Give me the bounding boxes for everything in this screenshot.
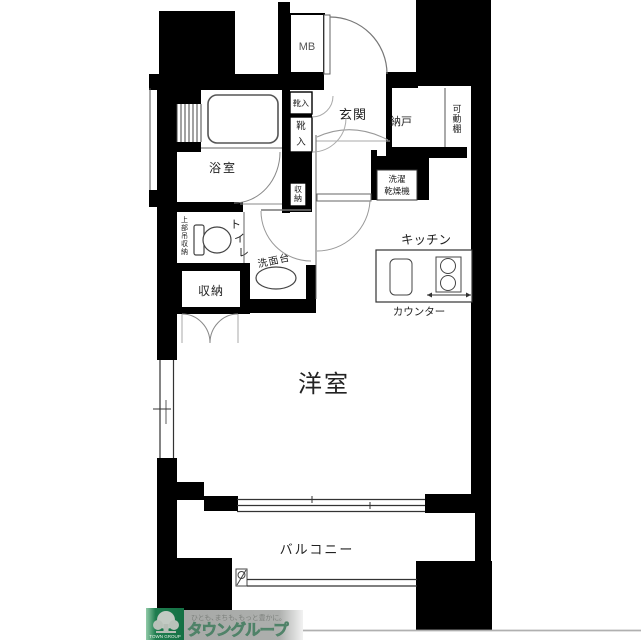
svg-text:納: 納 xyxy=(294,193,302,203)
svg-text:MB: MB xyxy=(299,41,316,53)
svg-text:納戸: 納戸 xyxy=(390,115,412,128)
svg-text:収: 収 xyxy=(294,184,302,194)
svg-text:収: 収 xyxy=(181,240,188,248)
svg-text:洗濯: 洗濯 xyxy=(388,174,406,184)
svg-text:収納: 収納 xyxy=(198,284,224,298)
svg-text:TOWN GROUP: TOWN GROUP xyxy=(149,634,180,639)
svg-text:靴: 靴 xyxy=(296,120,306,132)
svg-text:動: 動 xyxy=(452,114,461,124)
svg-text:可: 可 xyxy=(452,104,461,114)
svg-text:玄関: 玄関 xyxy=(339,107,367,122)
svg-text:カウンター: カウンター xyxy=(393,306,446,318)
svg-text:浴室: 浴室 xyxy=(209,160,237,175)
svg-text:靴入: 靴入 xyxy=(293,98,309,108)
svg-text:上: 上 xyxy=(181,215,188,224)
svg-text:ト: ト xyxy=(230,219,241,231)
svg-text:バルコニー: バルコニー xyxy=(280,542,355,557)
svg-text:入: 入 xyxy=(296,137,306,148)
svg-text:乾燥機: 乾燥機 xyxy=(384,186,410,196)
svg-text:棚: 棚 xyxy=(452,123,461,134)
svg-text:ひとも､まちも､もっと豊かに｡: ひとも､まちも､もっと豊かに｡ xyxy=(191,613,282,622)
svg-text:洋室: 洋室 xyxy=(298,371,350,398)
svg-text:部: 部 xyxy=(181,223,188,232)
svg-text:イ: イ xyxy=(234,233,245,245)
svg-text:タウングループ: タウングループ xyxy=(187,620,289,639)
svg-text:吊: 吊 xyxy=(181,232,188,240)
svg-text:納: 納 xyxy=(181,247,188,256)
svg-text:キッチン: キッチン xyxy=(401,233,451,247)
